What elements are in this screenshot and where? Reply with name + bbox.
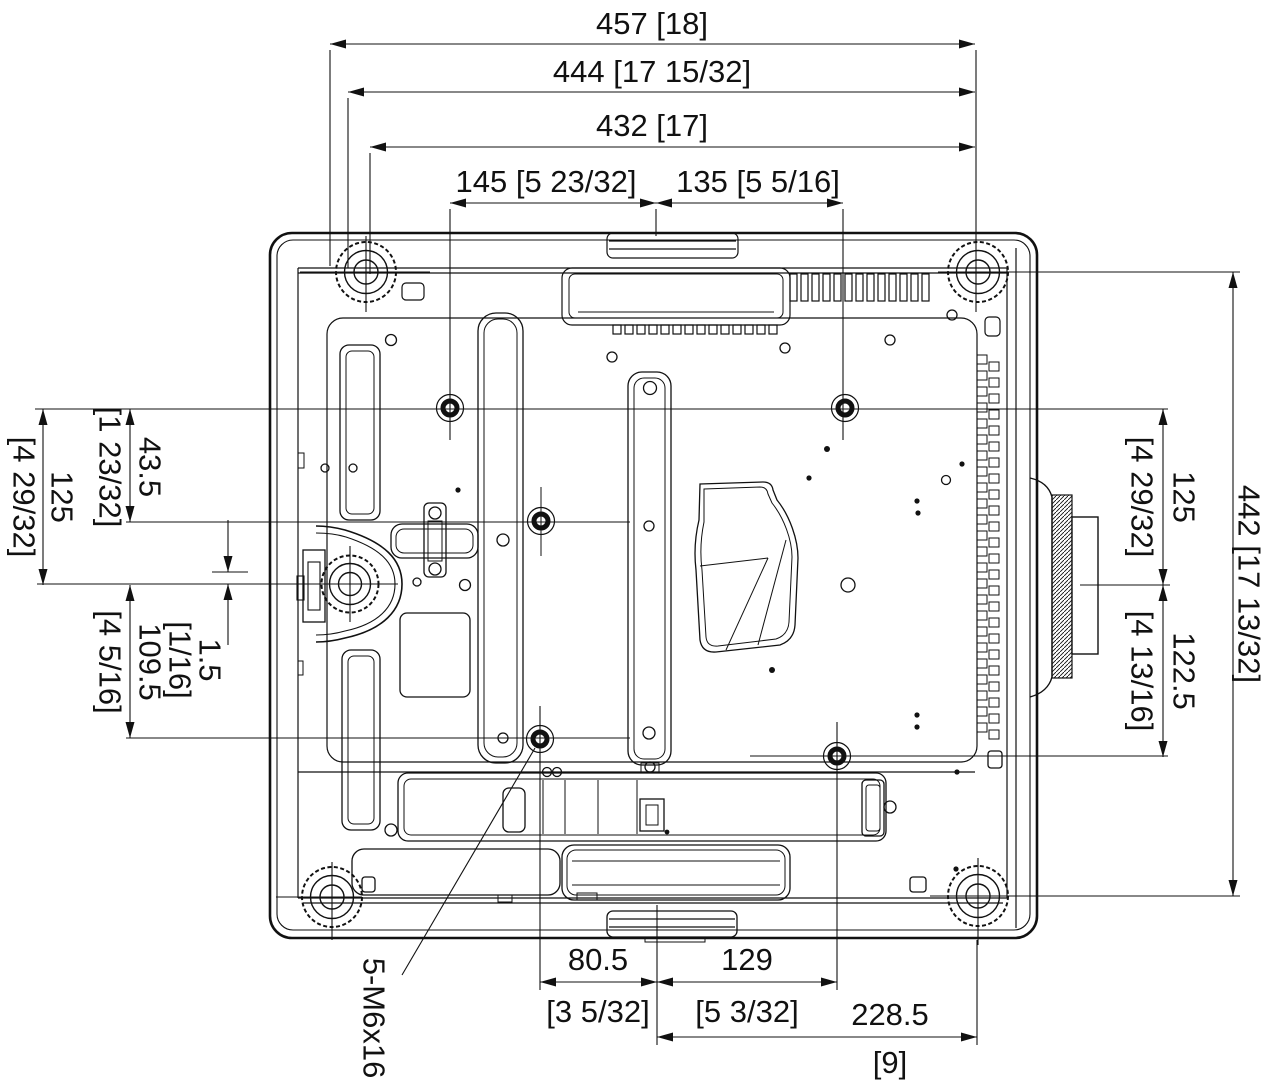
dim-bottom-80-5-mm: 80.5 (568, 942, 628, 977)
dim-right-122-5-mm: 122.5 (1167, 632, 1202, 710)
small-square-bottom-right (910, 877, 926, 892)
dim-right-122-5-in: [4 13/16] (1125, 611, 1160, 732)
dim-left-43-5-in: [1 23/32] (93, 407, 128, 528)
lens-ring-hatch (1052, 495, 1072, 678)
dim-bottom-129-in: [5 3/32] (695, 994, 798, 1029)
small-square-bottom-left (362, 877, 375, 892)
small-square-right (988, 751, 1002, 768)
dim-bottom-228-5-in: [9] (873, 1045, 907, 1080)
small-screw-holes (321, 310, 957, 836)
vent-teeth-row (613, 325, 777, 334)
dim-left-109-5-in: [4 5/16] (93, 610, 128, 713)
vent-slot-upper-left (340, 345, 380, 520)
vent-strip-right (977, 355, 999, 739)
speaker-cover (562, 845, 790, 900)
cross-bracket (391, 503, 478, 577)
dim-bottom-129-mm: 129 (721, 942, 773, 977)
dim-top-444: 444 [17 15/32] (553, 54, 751, 89)
small-square-top-left (402, 283, 424, 300)
dim-left-109-5-mm: 109.5 (133, 623, 168, 701)
slots-and-rails (340, 313, 999, 830)
vent-slot-lower-left (342, 650, 380, 830)
dim-top-457: 457 [18] (596, 6, 708, 41)
dim-top-432: 432 [17] (596, 108, 708, 143)
dim-top-145: 145 [5 23/32] (456, 164, 637, 199)
dim-right-125-in: [4 29/32] (1125, 437, 1160, 558)
bottom-details (298, 453, 1002, 942)
projector-bottom-view-drawing: 457 [18] 444 [17 15/32] 432 [17] 145 [5 … (0, 0, 1264, 1080)
dim-right-125-mm: 125 (1167, 471, 1202, 523)
center-details (391, 482, 798, 697)
dim-left-43-5-mm: 43.5 (133, 437, 168, 497)
dim-right-442: 442 [17 13/32] (1232, 485, 1264, 683)
edge-mark-1 (298, 453, 304, 468)
rim-tab-2 (577, 893, 597, 900)
m6-mounting-holes (437, 395, 859, 770)
dim-bottom-228-5-mm: 228.5 (851, 997, 929, 1032)
dim-top-135: 135 [5 5/16] (676, 164, 840, 199)
dim-left-1-5-in: [1/16] (163, 621, 198, 699)
rear-recess (562, 268, 790, 325)
edge-mark-2 (298, 661, 303, 675)
pin-dots (455, 446, 964, 872)
rail-left (478, 313, 523, 763)
center-cover-bump (695, 482, 798, 652)
bottom-left-cover (352, 849, 560, 895)
dim-left-125-mm: 125 (45, 471, 80, 523)
top-handle (607, 233, 738, 258)
dim-left-125-in: [4 29/32] (7, 437, 42, 558)
dim-bottom-80-5-in: [3 5/32] (546, 994, 649, 1029)
exhaust-grill (790, 274, 929, 301)
lamp-cover (398, 773, 886, 841)
thread-callout-leader (402, 748, 535, 975)
thread-callout-label: 5-M6x16 (357, 958, 392, 1079)
rail-center (628, 372, 671, 772)
label-plate (400, 613, 470, 697)
bottom-handle (607, 911, 737, 942)
lens-assembly (1030, 478, 1098, 697)
technical-drawing-page: 457 [18] 444 [17 15/32] 432 [17] 145 [5 … (0, 0, 1264, 1080)
small-square-top-right (985, 317, 1000, 336)
